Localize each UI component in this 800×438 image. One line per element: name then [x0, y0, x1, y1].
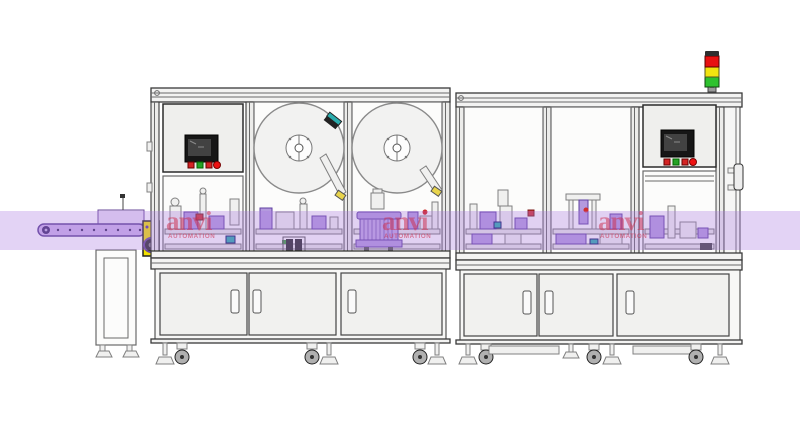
estop-button[interactable] — [690, 159, 697, 166]
hmi-button-red[interactable] — [664, 159, 670, 165]
door-handle[interactable] — [253, 290, 261, 313]
watermark-brand: anvi — [382, 206, 429, 236]
conveyor-foot — [96, 345, 139, 357]
hinge — [147, 183, 152, 192]
skid-rail — [633, 346, 695, 354]
hmi-button-red[interactable] — [206, 162, 212, 168]
estop-button[interactable] — [214, 162, 221, 169]
door-handle[interactable] — [231, 290, 239, 313]
door-handle[interactable] — [626, 291, 634, 314]
conveyor-stand — [96, 250, 136, 345]
door-handle[interactable] — [523, 291, 531, 314]
tower-cap — [705, 51, 719, 56]
skid-rail — [489, 346, 559, 354]
feet-right-machine — [459, 344, 729, 364]
top-beam — [151, 88, 450, 102]
watermark: anvi AUTOMATION — [382, 206, 431, 240]
sensor-tip — [120, 194, 125, 198]
feet-left-machine — [156, 343, 446, 364]
hmi-button-green[interactable] — [673, 159, 679, 165]
hmi-button-red[interactable] — [188, 162, 194, 168]
watermark-subtitle: AUTOMATION — [384, 233, 431, 240]
watermark-brand: anvi — [598, 206, 645, 236]
cad-canvas: anvi AUTOMATION anvi AUTOMATION anvi AUT… — [0, 0, 800, 438]
hmi-left — [185, 135, 221, 169]
door-handle[interactable] — [545, 291, 553, 314]
hmi-button-red[interactable] — [682, 159, 688, 165]
watermark-subtitle: AUTOMATION — [168, 233, 215, 240]
watermark: anvi AUTOMATION — [598, 206, 647, 240]
signal-tower — [705, 51, 719, 92]
hinge — [147, 142, 152, 151]
tower-light-green — [705, 77, 719, 87]
tower-light-red — [705, 56, 719, 67]
watermark-subtitle: AUTOMATION — [600, 233, 647, 240]
watermark: anvi AUTOMATION — [166, 206, 215, 240]
tower-light-yellow — [705, 67, 719, 77]
machine-line-drawing: anvi AUTOMATION anvi AUTOMATION anvi AUT… — [0, 0, 800, 438]
watermark-brand: anvi — [166, 206, 213, 236]
cabinet-door[interactable] — [249, 273, 336, 335]
hmi-right — [661, 130, 697, 166]
hmi-button-green[interactable] — [197, 162, 203, 168]
door-handle[interactable] — [348, 290, 356, 313]
